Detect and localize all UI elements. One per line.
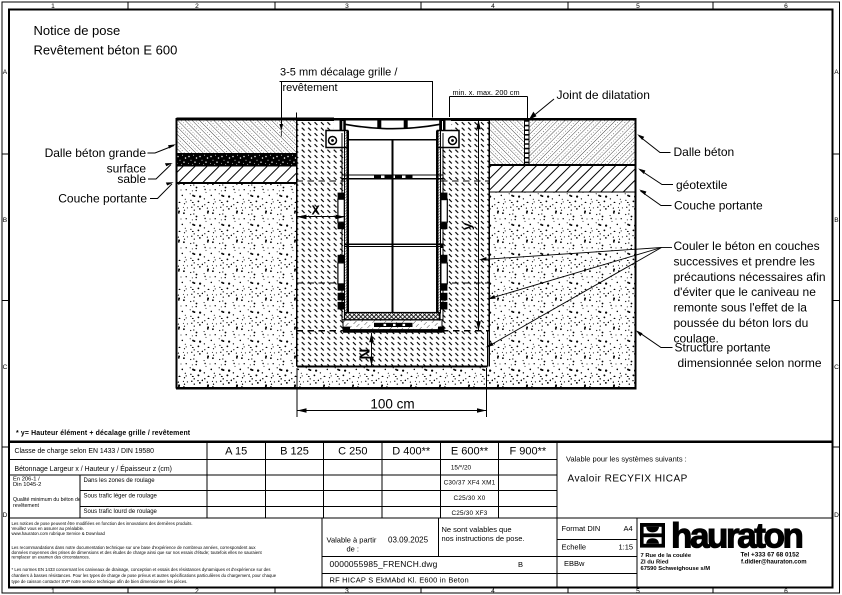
svg-text:5: 5: [636, 3, 640, 10]
svg-text:Format DIN: Format DIN: [562, 524, 601, 533]
svg-text:5: 5: [636, 588, 640, 595]
svg-text:successives et prendre les: successives et prendre les: [674, 254, 815, 268]
svg-text:remplacer un examen des circon: remplacer un examen des circonstances.: [12, 555, 90, 560]
svg-text:A: A: [834, 69, 839, 76]
svg-text:Couche portante: Couche portante: [58, 192, 147, 206]
svg-text:B 125: B 125: [280, 445, 309, 457]
svg-text:type de caisson contacter SVP: type de caisson contacter SVP notre serv…: [12, 579, 188, 584]
svg-text:A 15: A 15: [225, 445, 247, 457]
svg-text:C25/30 XF3: C25/30 XF3: [451, 510, 487, 517]
svg-text:4: 4: [491, 3, 495, 10]
svg-text:1:15: 1:15: [619, 543, 634, 552]
svg-text:min. x. max. 200 cm: min. x. max. 200 cm: [453, 88, 520, 97]
svg-text:géotextile: géotextile: [676, 178, 728, 192]
svg-text:Structure portante: Structure portante: [675, 341, 771, 355]
svg-text:C30/37 XF4 XM1: C30/37 XF4 XM1: [444, 480, 496, 487]
svg-text:B: B: [518, 560, 523, 569]
svg-text:67590 Schweighouse s/M: 67590 Schweighouse s/M: [641, 566, 711, 572]
svg-text:6: 6: [784, 3, 788, 10]
svg-text:F 900**: F 900**: [509, 445, 546, 457]
svg-text:* Les normes EN 1433 concernan: * Les normes EN 1433 concernant les cani…: [12, 567, 271, 572]
svg-text:C25/30 X0: C25/30 X0: [454, 495, 486, 502]
svg-text:2: 2: [195, 3, 199, 10]
svg-text:C 250: C 250: [338, 445, 367, 457]
svg-text:Sous trafic léger de roulage: Sous trafic léger de roulage: [84, 493, 158, 499]
svg-text:précautions nécessaires afin: précautions nécessaires afin: [674, 270, 826, 284]
svg-text:dimensionnée selon norme: dimensionnée selon norme: [678, 356, 822, 370]
svg-text:y: y: [460, 222, 475, 230]
svg-text:Joint de dilatation: Joint de dilatation: [557, 88, 650, 102]
svg-text:f.didier@hauraton.com: f.didier@hauraton.com: [741, 560, 807, 566]
svg-text:3: 3: [345, 588, 349, 595]
svg-text:D 400**: D 400**: [392, 445, 431, 457]
svg-text:poussée du béton lors du: poussée du béton lors du: [674, 316, 809, 330]
svg-text:Bétonnage Largeur x / Hauteu: Bétonnage Largeur x / Hauteur y / Épaiss…: [15, 464, 172, 473]
svg-text:6: 6: [784, 588, 788, 595]
svg-text:chantiers à basses résistances: chantiers à basses résistances. Pour les…: [12, 573, 277, 578]
svg-text:1: 1: [51, 588, 55, 595]
svg-text:Sous trafic lourd de roulage: Sous trafic lourd de roulage: [84, 509, 158, 515]
svg-text:www.hauraton.com rubrique Ser: www.hauraton.com rubrique Service & Down…: [12, 531, 106, 536]
svg-text:Valable à partir: Valable à partir: [327, 536, 377, 545]
svg-text:A: A: [3, 69, 8, 76]
svg-text:C: C: [834, 364, 839, 371]
svg-text:remonte sous l'effet de la: remonte sous l'effet de la: [674, 301, 808, 315]
svg-text:B: B: [834, 217, 839, 224]
svg-text:Revêtement béton E 600: Revêtement béton E 600: [34, 43, 178, 58]
svg-text:15/*/20: 15/*/20: [451, 465, 472, 472]
svg-text:7 Rue de la coulée: 7 Rue de la coulée: [641, 553, 692, 559]
svg-text:C: C: [3, 364, 8, 371]
svg-text:1: 1: [51, 3, 55, 10]
svg-text:RF HICAP S EkMAbd Kl. E600 i: RF HICAP S EkMAbd Kl. E600 in Beton: [330, 576, 469, 585]
svg-text:d'éviter que le caniveau ne: d'éviter que le caniveau ne: [674, 285, 817, 299]
svg-text:Dalle béton: Dalle béton: [674, 145, 735, 159]
svg-text:revêtement: revêtement: [13, 503, 40, 509]
svg-text:Din 1045-2: Din 1045-2: [13, 482, 41, 488]
svg-text:3-5 mm décalage grille /: 3-5 mm décalage grille /: [280, 67, 398, 79]
svg-text:revêtement: revêtement: [283, 82, 338, 94]
svg-text:Notice de pose: Notice de pose: [34, 23, 121, 38]
svg-text:EBBw: EBBw: [564, 559, 585, 568]
svg-text:Classe de charge selon EN 1433: Classe de charge selon EN 1433 / DIN 195…: [15, 448, 155, 455]
svg-text:Echelle: Echelle: [562, 543, 587, 552]
svg-text:D: D: [3, 512, 8, 519]
svg-text:A4: A4: [624, 524, 633, 533]
svg-text:100 cm: 100 cm: [370, 396, 414, 411]
svg-text:Dans les zones de roulage: Dans les zones de roulage: [84, 478, 156, 484]
svg-text:D: D: [834, 512, 839, 519]
svg-text:N: N: [357, 349, 374, 360]
svg-text:ZI du Ried: ZI du Ried: [641, 560, 669, 566]
svg-text:Dalle béton grande: Dalle béton grande: [45, 146, 147, 160]
svg-text:de :: de :: [347, 545, 360, 554]
svg-text:2: 2: [195, 588, 199, 595]
svg-text:3: 3: [345, 3, 349, 10]
svg-text:Valable pour les systèmes suiv: Valable pour les systèmes suivants :: [566, 455, 687, 464]
svg-text:Ne sont valables que: Ne sont valables que: [442, 525, 512, 534]
svg-text:Avaloir RECYFIX HICAP: Avaloir RECYFIX HICAP: [568, 474, 688, 485]
svg-text:Couche portante: Couche portante: [674, 199, 763, 213]
svg-text:B: B: [3, 217, 8, 224]
svg-text:4: 4: [491, 588, 495, 595]
svg-text:* y= Hauteur élément + décalag: * y= Hauteur élément + décalage grille /…: [16, 430, 191, 437]
svg-text:sable: sable: [117, 172, 146, 186]
svg-text:03.09.2025: 03.09.2025: [388, 536, 429, 545]
svg-text:Tel +333 67 68 0152: Tel +333 67 68 0152: [741, 552, 800, 559]
svg-text:X: X: [312, 204, 321, 218]
svg-text:E 600**: E 600**: [451, 445, 489, 457]
svg-text:nos instructions de pose.: nos instructions de pose.: [442, 534, 525, 543]
svg-text:Couler le béton en couches: Couler le béton en couches: [674, 239, 820, 253]
svg-text:0000055985_FRENCH.dwg: 0000055985_FRENCH.dwg: [330, 559, 438, 569]
svg-text:hauraton: hauraton: [671, 517, 803, 556]
